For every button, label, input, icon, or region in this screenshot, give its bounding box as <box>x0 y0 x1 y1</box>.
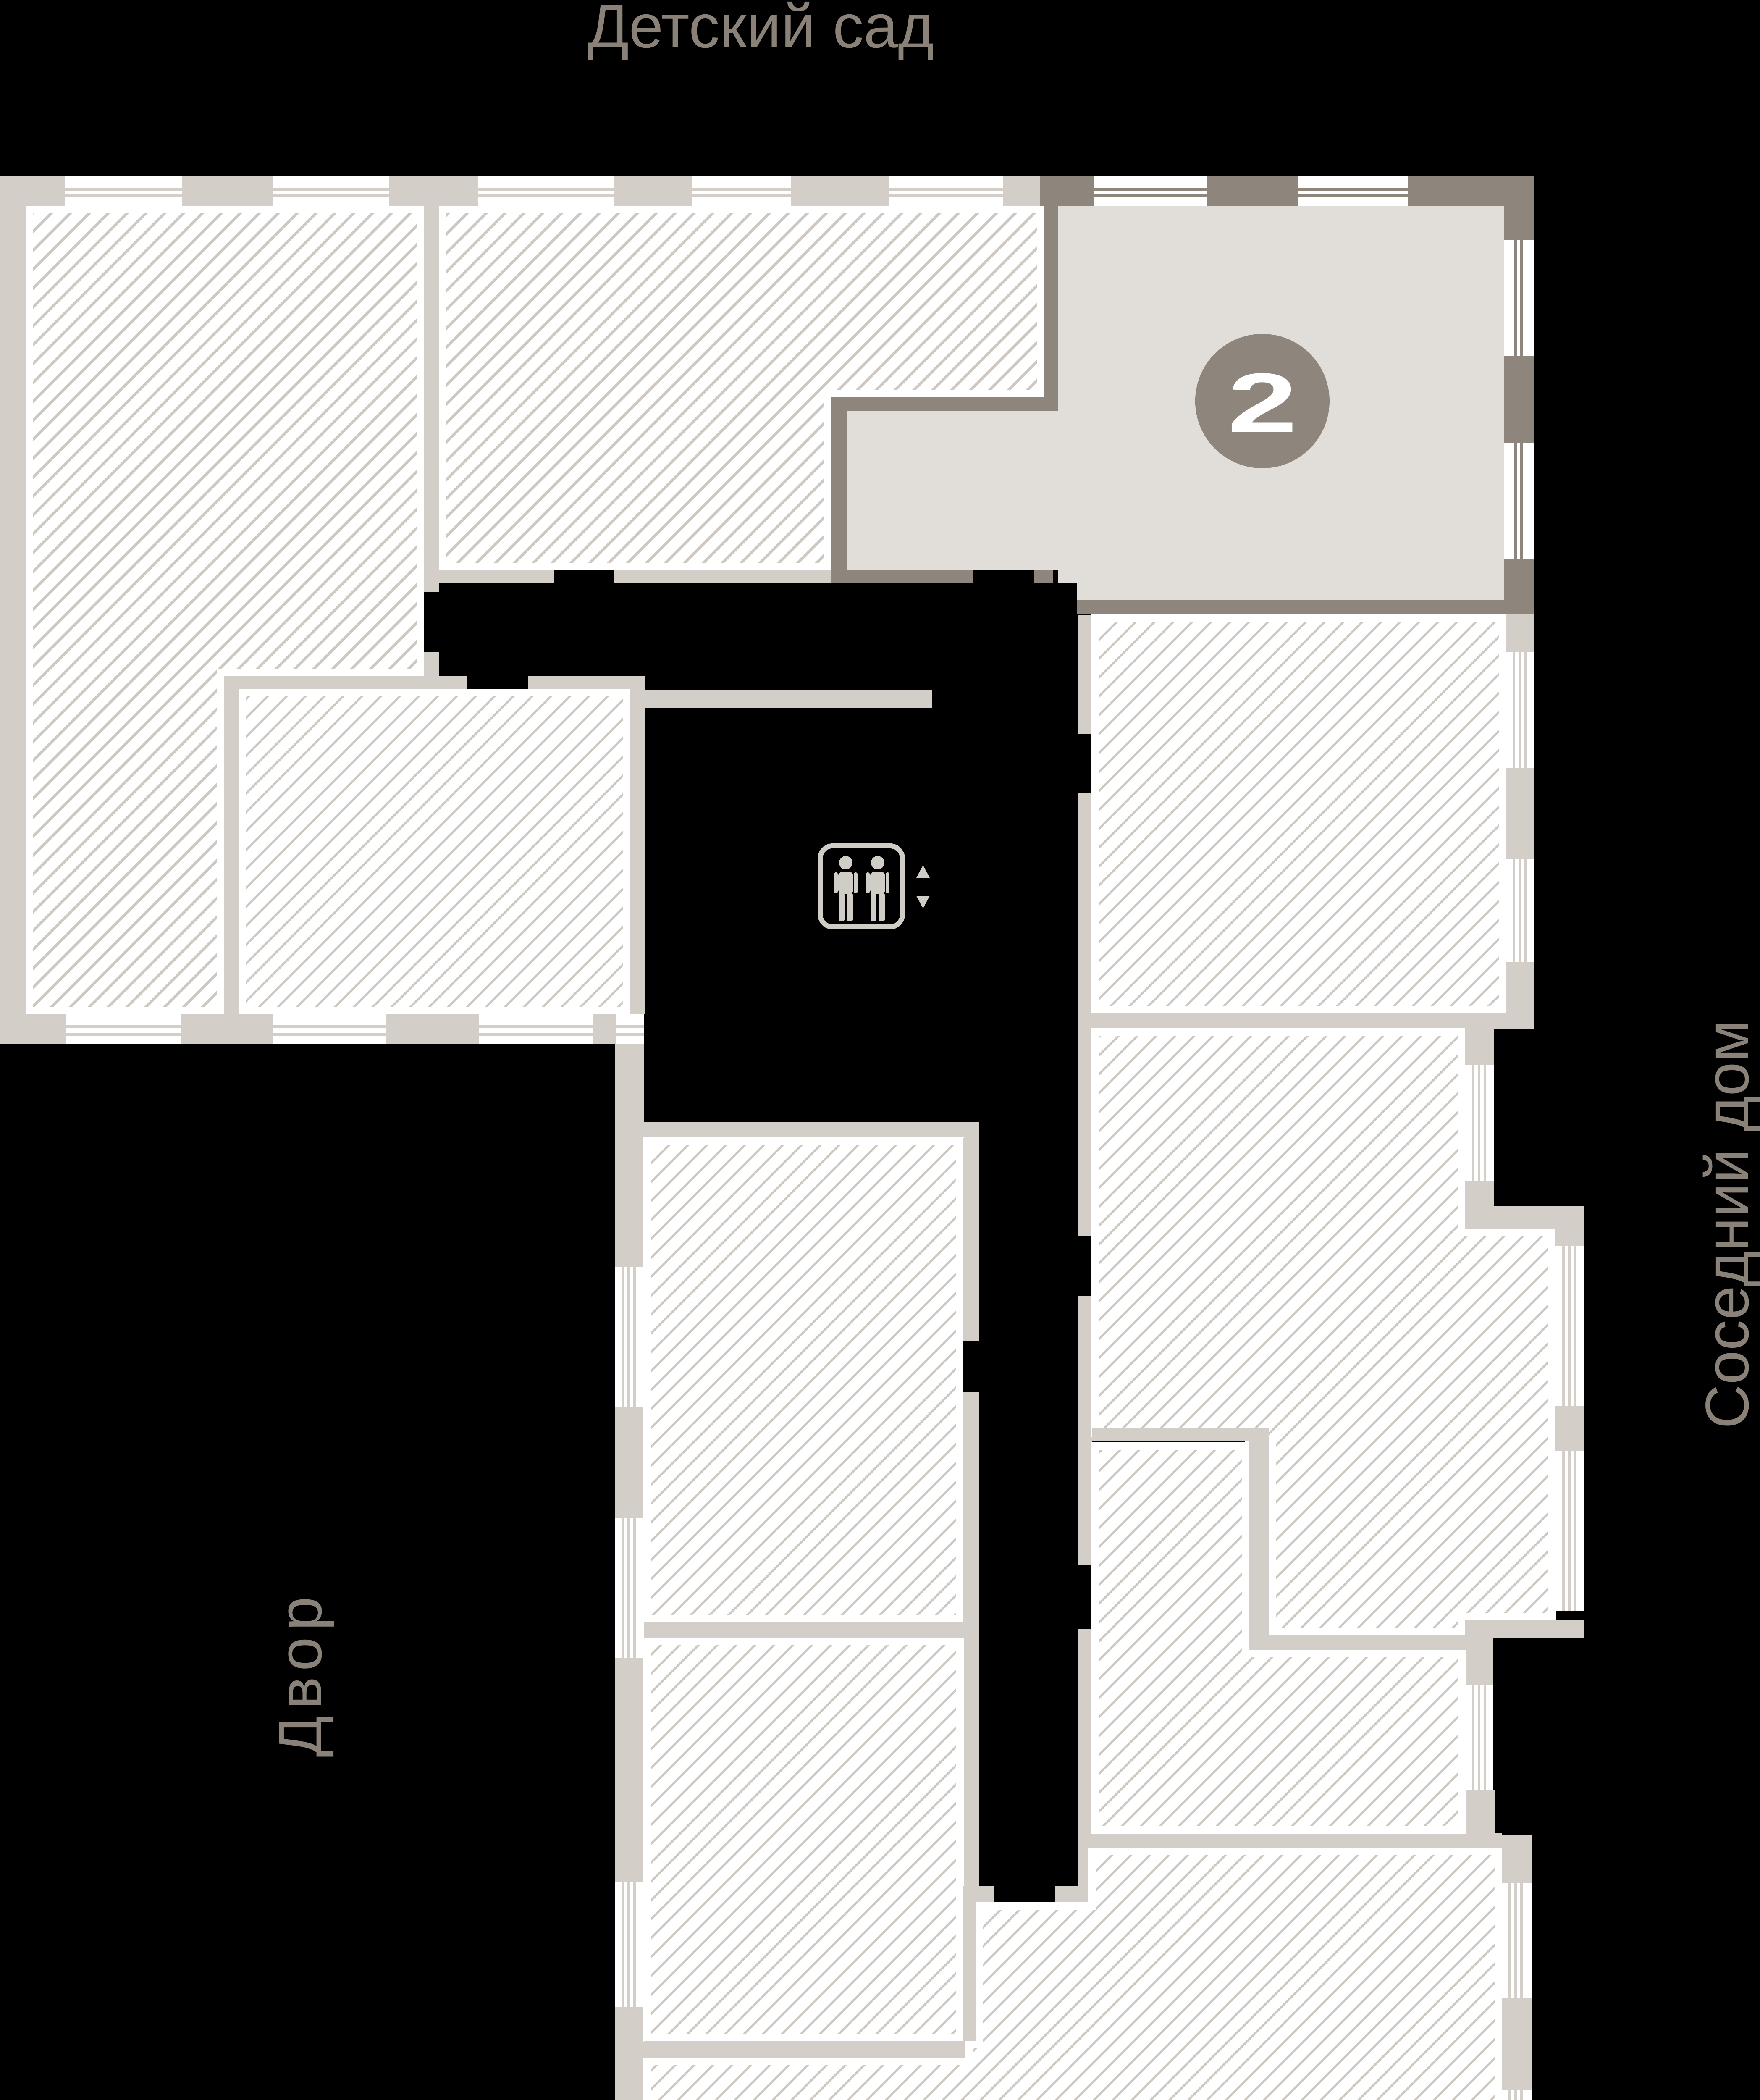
svg-text:Соседний дом: Соседний дом <box>1693 1020 1760 1429</box>
svg-text:2: 2 <box>1228 356 1298 450</box>
svg-text:Двор: Двор <box>266 1590 334 1757</box>
svg-text:Детский сад: Детский сад <box>587 0 934 61</box>
